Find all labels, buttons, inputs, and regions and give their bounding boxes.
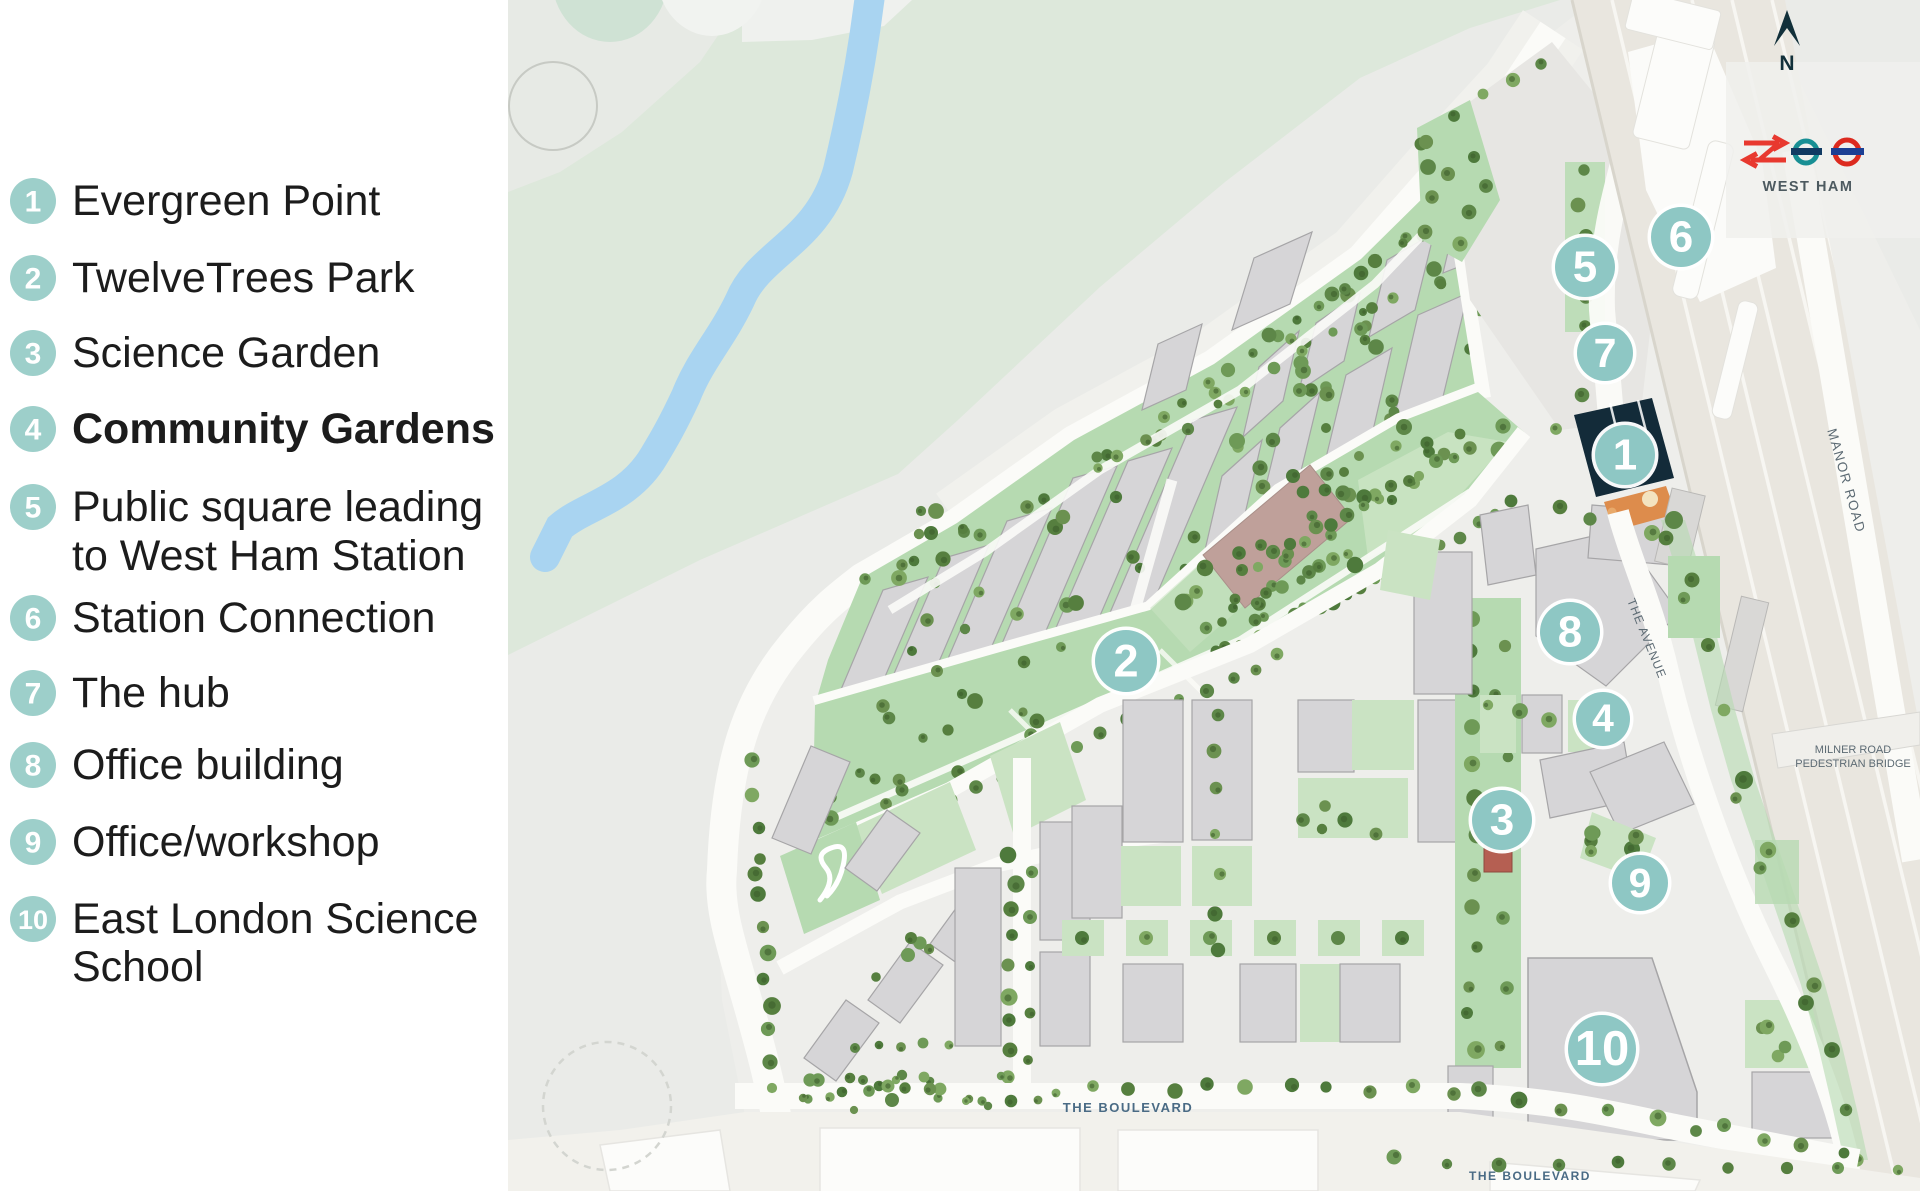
svg-text:N: N <box>1779 52 1794 75</box>
svg-text:7: 7 <box>1594 330 1617 376</box>
svg-text:THE BOULEVARD: THE BOULEVARD <box>1469 1169 1591 1183</box>
svg-text:4: 4 <box>1592 698 1614 741</box>
svg-text:THE BOULEVARD: THE BOULEVARD <box>1063 1100 1193 1115</box>
svg-text:8: 8 <box>1558 608 1582 657</box>
svg-text:Station Connection: Station Connection <box>72 594 435 642</box>
svg-text:2: 2 <box>25 263 42 296</box>
svg-text:PEDESTRIAN BRIDGE: PEDESTRIAN BRIDGE <box>1795 758 1911 770</box>
svg-text:1: 1 <box>25 186 42 219</box>
svg-text:9: 9 <box>1629 860 1652 906</box>
svg-text:WEST HAM: WEST HAM <box>1763 179 1854 195</box>
svg-text:Science Garden: Science Garden <box>72 329 380 377</box>
svg-text:5: 5 <box>1573 243 1597 292</box>
svg-text:1: 1 <box>1613 431 1637 480</box>
svg-text:East London Science: East London Science <box>72 895 478 943</box>
svg-text:9: 9 <box>25 827 42 860</box>
svg-text:Public square leading: Public square leading <box>72 483 483 531</box>
svg-text:6: 6 <box>1669 213 1693 262</box>
svg-text:6: 6 <box>25 603 42 636</box>
svg-text:The hub: The hub <box>72 669 230 717</box>
svg-text:10: 10 <box>18 905 48 935</box>
svg-text:4: 4 <box>25 414 42 447</box>
svg-text:8: 8 <box>25 750 42 783</box>
svg-text:TwelveTrees Park: TwelveTrees Park <box>72 254 415 302</box>
svg-text:5: 5 <box>25 492 42 525</box>
svg-text:2: 2 <box>1113 636 1138 687</box>
svg-text:10: 10 <box>1575 1022 1630 1076</box>
svg-text:School: School <box>72 943 203 991</box>
svg-text:MILNER ROAD: MILNER ROAD <box>1815 744 1891 756</box>
svg-text:Evergreen Point: Evergreen Point <box>72 177 380 225</box>
svg-text:Community Gardens: Community Gardens <box>72 405 495 453</box>
svg-text:3: 3 <box>25 338 42 371</box>
svg-text:Office/workshop: Office/workshop <box>72 818 380 866</box>
svg-text:7: 7 <box>25 678 42 711</box>
svg-text:3: 3 <box>1490 796 1514 845</box>
svg-text:to West Ham Station: to West Ham Station <box>72 532 466 580</box>
svg-text:Office building: Office building <box>72 741 344 789</box>
